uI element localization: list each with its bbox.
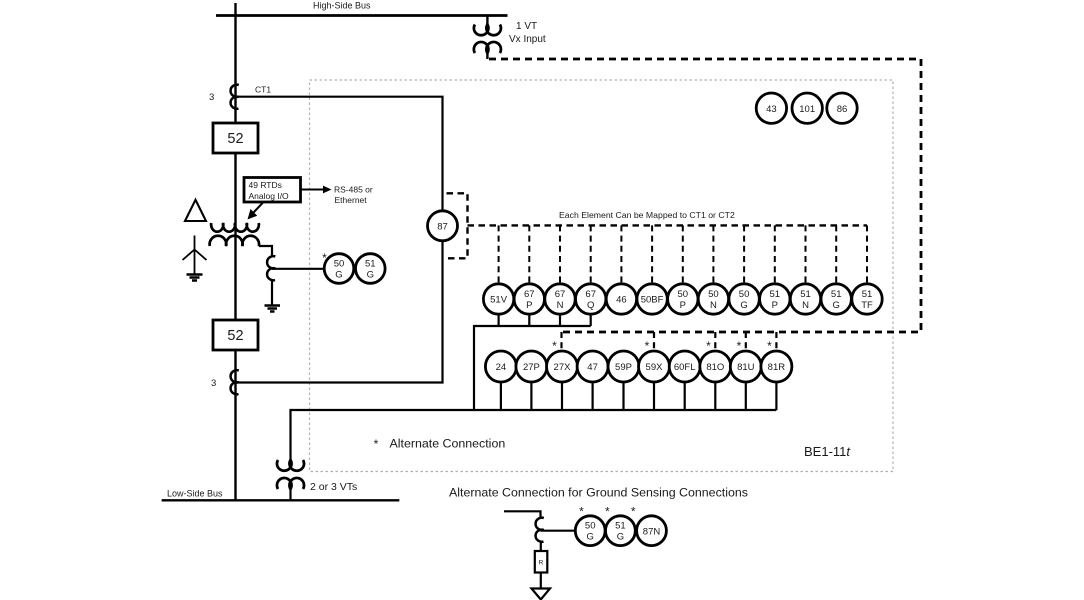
svg-text:Vx Input: Vx Input	[509, 34, 546, 45]
svg-text:87: 87	[437, 222, 448, 233]
svg-text:50: 50	[708, 289, 719, 300]
svg-text:43: 43	[766, 104, 777, 115]
svg-text:3: 3	[209, 92, 214, 103]
svg-text:P: P	[526, 300, 532, 311]
svg-text:Low-Side Bus: Low-Side Bus	[167, 489, 223, 499]
svg-text:3: 3	[211, 378, 216, 389]
svg-text:51: 51	[615, 521, 626, 532]
svg-text:G: G	[833, 300, 840, 311]
svg-text:Alternate Connection: Alternate Connection	[390, 437, 506, 451]
svg-text:51V: 51V	[490, 295, 508, 306]
svg-text:67: 67	[555, 289, 566, 300]
svg-text:RS-485 or: RS-485 or	[334, 185, 373, 195]
svg-text:27P: 27P	[523, 362, 540, 373]
svg-text:51: 51	[770, 289, 781, 300]
svg-text:Alternate Connection for Groun: Alternate Connection for Ground Sensing …	[449, 486, 748, 500]
svg-text:87N: 87N	[643, 526, 661, 537]
svg-text:81U: 81U	[737, 362, 755, 373]
svg-text:*: *	[605, 505, 610, 519]
svg-text:*: *	[552, 339, 557, 353]
svg-text:101: 101	[799, 104, 815, 115]
svg-text:N: N	[710, 300, 717, 311]
svg-text:52: 52	[227, 328, 243, 344]
svg-text:P: P	[680, 300, 686, 311]
svg-text:*: *	[374, 437, 379, 451]
svg-text:N: N	[802, 300, 809, 311]
svg-text:50: 50	[585, 521, 596, 532]
svg-text:*: *	[706, 339, 711, 353]
svg-text:49 RTDs: 49 RTDs	[249, 180, 282, 190]
svg-text:67: 67	[585, 289, 596, 300]
svg-text:59X: 59X	[646, 362, 664, 373]
svg-text:TF: TF	[861, 300, 873, 311]
svg-text:50: 50	[739, 289, 750, 300]
svg-text:51: 51	[365, 259, 376, 270]
svg-text:81R: 81R	[768, 362, 786, 373]
svg-text:*: *	[767, 339, 772, 353]
svg-text:81O: 81O	[706, 362, 724, 373]
svg-text:46: 46	[616, 295, 627, 306]
svg-text:*: *	[645, 339, 650, 353]
svg-text:24: 24	[496, 362, 507, 373]
svg-text:59P: 59P	[615, 362, 632, 373]
svg-text:2 or 3 VTs: 2 or 3 VTs	[310, 481, 357, 493]
svg-text:Each Element Can be Mapped to: Each Element Can be Mapped to CT1 or CT2	[559, 210, 735, 220]
svg-text:27X: 27X	[554, 362, 572, 373]
svg-text:Q: Q	[587, 300, 594, 311]
svg-text:67: 67	[524, 289, 535, 300]
svg-text:47: 47	[587, 362, 598, 373]
svg-text:51: 51	[862, 289, 873, 300]
svg-text:G: G	[617, 532, 624, 543]
svg-text:51: 51	[831, 289, 842, 300]
svg-text:BE1-11t: BE1-11t	[804, 444, 851, 459]
svg-text:*: *	[631, 505, 636, 519]
svg-text:Ethernet: Ethernet	[335, 195, 368, 205]
svg-text:60FL: 60FL	[674, 362, 696, 373]
svg-text:P: P	[772, 300, 778, 311]
svg-text:51: 51	[800, 289, 811, 300]
svg-text:CT1: CT1	[255, 85, 271, 95]
svg-text:86: 86	[837, 104, 848, 115]
svg-text:G: G	[740, 300, 747, 311]
svg-text:G: G	[335, 270, 342, 281]
svg-text:50: 50	[678, 289, 689, 300]
svg-text:Analog I/O: Analog I/O	[249, 191, 290, 201]
svg-text:R: R	[539, 560, 544, 567]
svg-text:1 VT: 1 VT	[516, 21, 537, 32]
svg-text:G: G	[367, 270, 374, 281]
svg-text:High-Side Bus: High-Side Bus	[313, 1, 371, 11]
svg-text:G: G	[587, 532, 594, 543]
svg-text:50BF: 50BF	[641, 295, 664, 306]
svg-text:*: *	[737, 339, 742, 353]
svg-text:52: 52	[227, 131, 243, 147]
svg-text:N: N	[557, 300, 564, 311]
svg-text:50: 50	[334, 259, 345, 270]
